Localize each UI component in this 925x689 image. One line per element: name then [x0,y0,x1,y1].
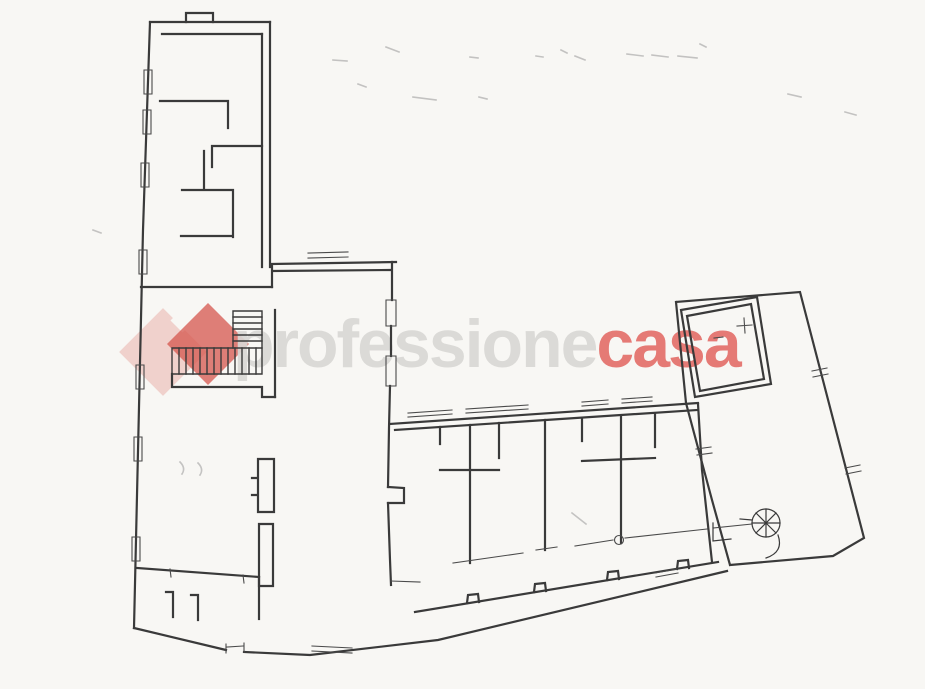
walls [134,13,864,655]
staircase [172,311,262,374]
thin-details-path [714,318,752,338]
floor-plan-svg [0,0,925,689]
walls-path [134,571,727,655]
scan-smudges-path [180,462,202,475]
scan-smudges-path [627,54,697,58]
staircase-path [179,348,256,374]
walls-path [181,151,233,237]
walls-path [272,262,396,287]
walls-path [687,304,764,391]
staircase-path [233,317,262,341]
walls-path [391,262,392,356]
scan-smudges-path [386,47,399,52]
scan-smudges-path [561,50,585,60]
walls-path [440,414,655,563]
walls-path [137,568,259,577]
scan-smudges-path [572,513,586,524]
walls-path [698,404,712,562]
walls-path [172,374,275,397]
walls-path [388,487,404,503]
spiral-staircase [713,509,780,558]
scan-smudges-path [536,56,543,57]
walls-path [186,13,213,22]
walls-path [166,592,198,620]
scan-smudges-path [470,57,478,58]
scanned-floorplan-page: professionecasa [0,0,925,689]
scan-smudges-path [700,44,706,47]
walls-path [259,524,273,586]
scan-smudges-path [845,112,856,115]
scan-smudges-path [413,97,436,100]
walls-path [388,386,391,585]
spiral-staircase-path [752,509,780,537]
thin-details-path [226,569,678,653]
thin-details-path [615,536,624,545]
walls-path [160,101,228,128]
scan-smudges-path [93,230,101,233]
walls-path [676,292,864,565]
scan-smudges-path [358,84,366,87]
walls-path [212,146,262,167]
walls-path [252,459,274,512]
walls-path [440,458,655,470]
scan-smudges [93,44,856,524]
thin-details-path [812,368,861,474]
thin-details-path [391,524,752,582]
walls-path [467,560,689,603]
scan-smudges-path [479,97,487,99]
thin-details-path [308,252,348,258]
scan-smudges-path [788,94,801,97]
scan-smudges-path [333,60,347,61]
